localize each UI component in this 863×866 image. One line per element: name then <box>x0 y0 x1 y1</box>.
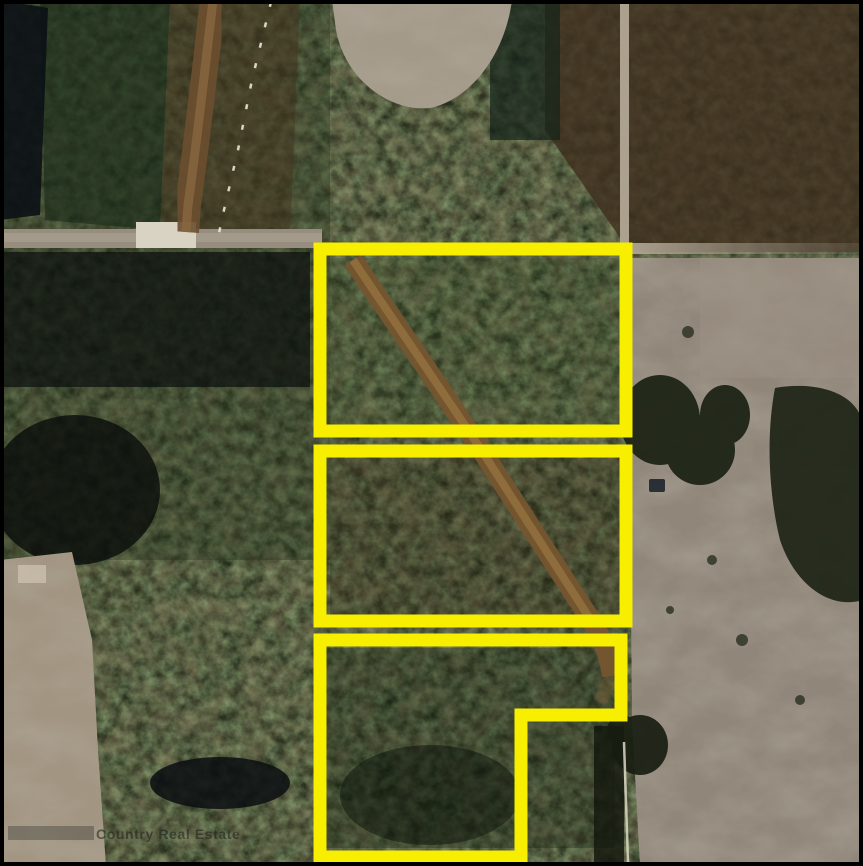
west-pond-upper <box>0 0 48 220</box>
watermark-illegible-smudge <box>8 826 94 840</box>
southwest-pond <box>150 757 290 809</box>
east-road <box>628 243 863 254</box>
watermark-text: Country Real Estate <box>96 826 240 842</box>
watermark: Country Real Estate <box>8 826 240 842</box>
shrub-dot <box>707 555 717 565</box>
satellite-photo-canvas: Country Real Estate <box>0 0 863 866</box>
vehicle-object <box>649 479 665 492</box>
shrub-dot <box>736 634 748 646</box>
east-field-bright-area <box>700 258 863 378</box>
swamp-band-below-road <box>0 252 310 387</box>
northwest-conifers <box>40 0 170 230</box>
tree-blob <box>700 385 750 445</box>
bottom-parcel-dark-thicket <box>340 745 520 845</box>
north-vertical-road <box>620 0 629 252</box>
southwest-field-bright-spot <box>18 565 46 583</box>
aerial-parcel-map-image: Country Real Estate <box>0 0 863 866</box>
shrub-dot <box>795 695 805 705</box>
shrub-dot <box>666 606 674 614</box>
shrub-dot <box>682 326 694 338</box>
